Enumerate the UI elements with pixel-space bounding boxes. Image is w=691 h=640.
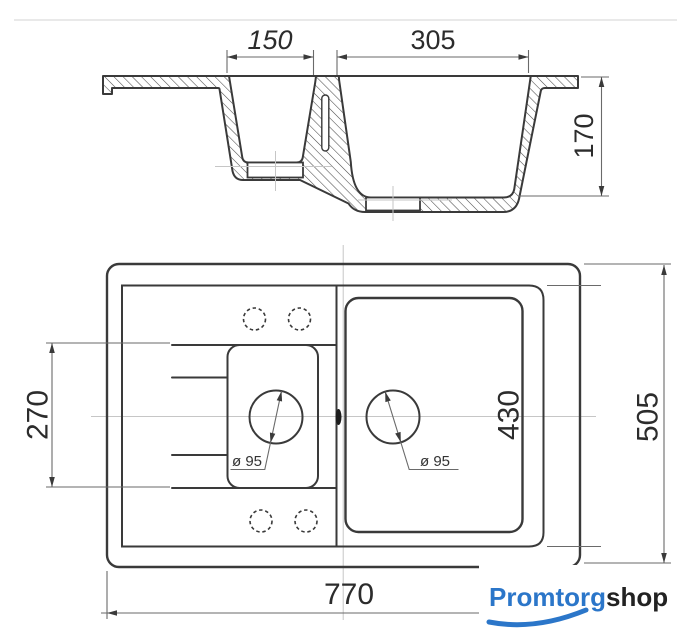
dimension-305: 305 bbox=[337, 25, 529, 75]
dim-150-label: 150 bbox=[247, 25, 292, 55]
dimension-150: 150 bbox=[227, 25, 314, 75]
dimension-770: 770 bbox=[101, 571, 479, 619]
dim-430-label: 430 bbox=[493, 390, 526, 440]
dimension-505: 505 bbox=[584, 264, 671, 563]
plan-view: ø 95 ø 95 270 430 bbox=[22, 245, 672, 620]
logo-text-secondary: shop bbox=[606, 582, 668, 612]
divider-overflow-mark bbox=[336, 409, 342, 425]
faucet-holes bbox=[244, 308, 318, 532]
faucet-hole-top-right bbox=[289, 308, 311, 330]
logo: Promtorgshop bbox=[479, 565, 691, 640]
dim-270-label: 270 bbox=[22, 390, 55, 440]
dim-305-label: 305 bbox=[410, 25, 455, 55]
dim-505-label: 505 bbox=[632, 392, 665, 442]
divider-slot bbox=[322, 95, 329, 151]
logo-text-primary: Promtorg bbox=[489, 582, 606, 612]
dim-770-label: 770 bbox=[324, 578, 374, 611]
small-bowl-drain: ø 95 bbox=[231, 391, 303, 471]
logo-wordmark: Promtorgshop bbox=[489, 582, 668, 612]
cross-section-view: 150 305 170 bbox=[103, 25, 609, 221]
faucet-hole-bottom-right bbox=[295, 510, 317, 532]
dimension-270: 270 bbox=[22, 343, 171, 487]
drawing-sheet: 150 305 170 bbox=[0, 0, 691, 640]
faucet-hole-top-left bbox=[244, 308, 266, 330]
technical-drawing: 150 305 170 bbox=[0, 0, 691, 640]
large-bowl-cavity bbox=[339, 76, 531, 198]
large-bowl-drain: ø 95 bbox=[367, 391, 459, 471]
small-bowl-cavity bbox=[229, 76, 316, 163]
drain-diameter-label-right: ø 95 bbox=[420, 453, 450, 470]
dim-170-label: 170 bbox=[569, 113, 599, 158]
faucet-hole-bottom-left bbox=[250, 510, 272, 532]
drain-diameter-label-left: ø 95 bbox=[232, 453, 262, 470]
